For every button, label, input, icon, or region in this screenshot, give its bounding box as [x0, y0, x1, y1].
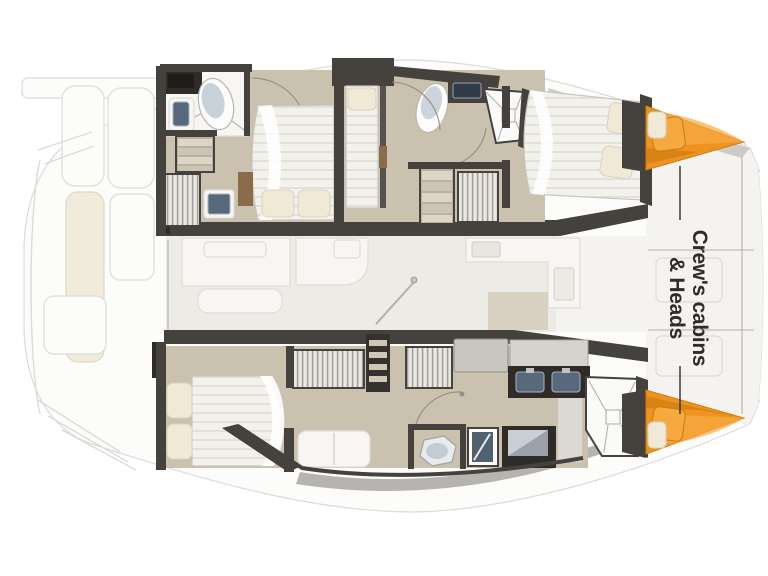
crew-label-line1: Crew's cabins	[688, 230, 711, 367]
stbd-bedfoot-wall	[284, 428, 294, 472]
port-aft-bed	[252, 105, 334, 220]
crew-pillow-port	[648, 112, 666, 138]
port-aft-wardrobe	[162, 174, 200, 226]
aft-platform-outline	[44, 296, 106, 354]
port-aft-cabinet-inner	[168, 74, 194, 88]
stbd-vanity	[508, 366, 590, 398]
galley-island-top	[204, 242, 266, 257]
port-mid-wall	[334, 84, 344, 224]
pillow	[348, 88, 376, 110]
stbd-left-wall	[156, 342, 166, 470]
port-aft-stairs	[176, 136, 214, 172]
door-dot	[460, 392, 465, 397]
stbd-wardrobe-2	[406, 347, 452, 388]
crew-wall-port	[622, 100, 646, 172]
starboard-hull	[156, 334, 648, 475]
crew-wall-stbd	[622, 390, 646, 458]
catamaran-deck-plan: Crew's cabins & Heads	[0, 0, 768, 576]
pillow	[167, 383, 192, 418]
port-fwd-wardrobe	[458, 172, 498, 222]
port-fwd-sink	[453, 83, 481, 98]
stbd-companionway-ladder	[366, 334, 390, 392]
port-left-wall	[156, 66, 166, 226]
aft-locker-left	[62, 86, 104, 186]
sink	[552, 372, 580, 392]
saloon-bench	[198, 289, 282, 313]
stbd-cabinet-gray	[454, 339, 508, 372]
port-fwd-stairs	[420, 168, 454, 224]
stbd-toiletroom-rightwall	[460, 424, 466, 469]
port-mid-berth	[346, 86, 378, 208]
crew-label-line2: & Heads	[665, 257, 688, 339]
port-top-block	[332, 58, 394, 86]
pillow	[262, 190, 294, 217]
port-washer-glass	[208, 194, 230, 214]
port-cabin-doorwall-b	[502, 160, 510, 208]
cockpit-bench-outline	[110, 194, 154, 280]
port-cabin-doorwall-a	[502, 86, 510, 128]
stbd-corridor	[558, 398, 582, 462]
stbd-shower-glass	[468, 428, 498, 466]
stbd-vanity-cabinet	[510, 340, 588, 368]
door-handle-dot	[411, 277, 417, 283]
saloon-aft-bulkhead-port	[164, 220, 560, 236]
galley-floor-mat	[488, 292, 548, 330]
saloon-table	[334, 240, 360, 258]
port-bottom-wall	[156, 222, 166, 236]
stbd-wardrobe-1	[293, 350, 364, 388]
pillow	[167, 424, 192, 459]
stbd-toiletroom-leftwall	[408, 424, 414, 469]
port-nightstand-wood	[238, 172, 253, 206]
aft-locker-right	[108, 88, 154, 188]
port-aft-toilet-bowl	[173, 102, 189, 126]
port-divider-wood	[379, 146, 387, 168]
floor-plan-svg: Crew's cabins & Heads	[0, 0, 768, 576]
pillow	[298, 190, 330, 217]
crew-pillow-stbd	[648, 422, 666, 448]
stbd-toiletroom-topwall	[408, 424, 466, 430]
port-aft-head-wall	[244, 70, 250, 136]
galley-sink	[472, 242, 500, 257]
galley-stove	[554, 268, 574, 300]
port-top-wall-aft	[160, 64, 252, 72]
sink	[516, 372, 544, 392]
